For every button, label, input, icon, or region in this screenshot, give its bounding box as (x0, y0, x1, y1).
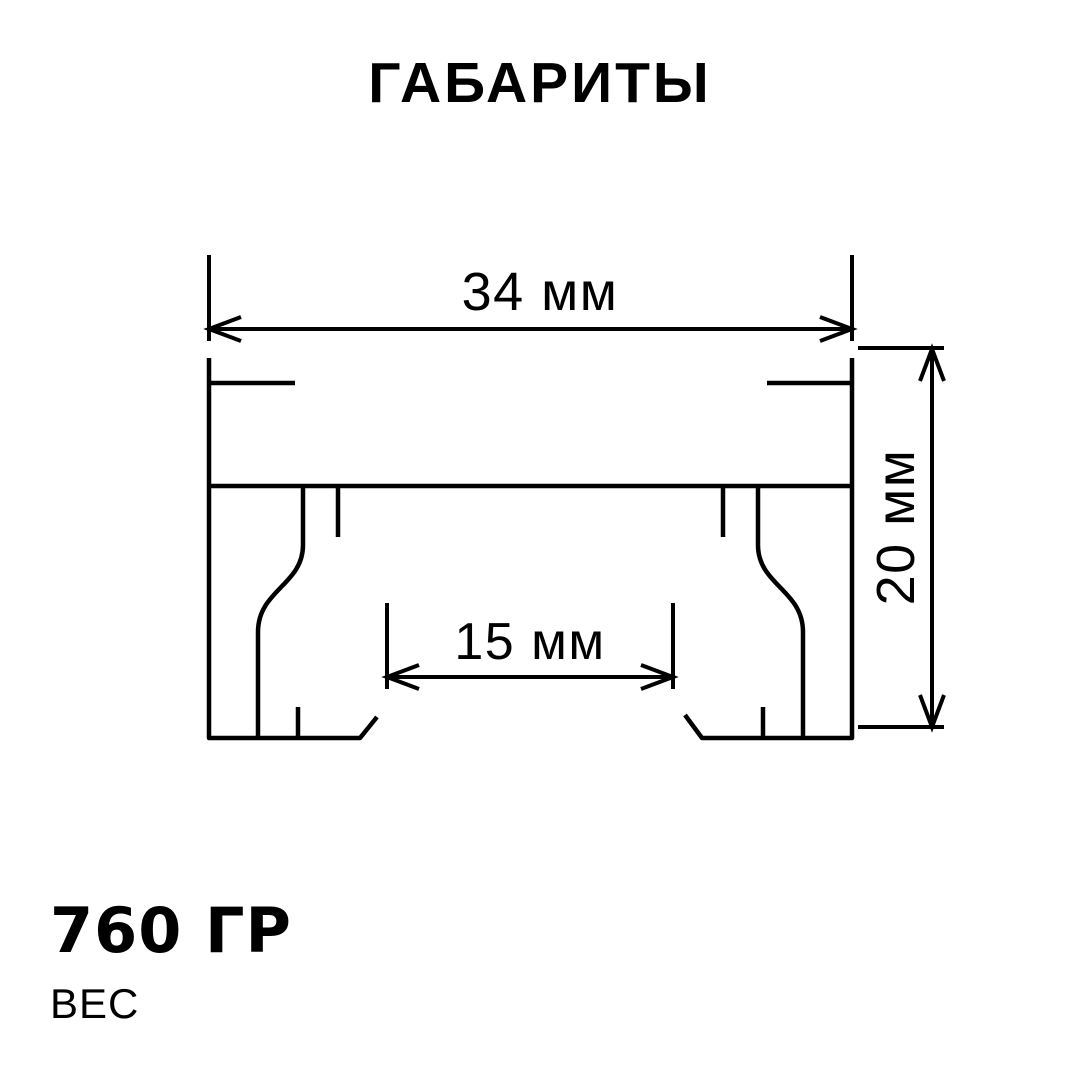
profile-outline (209, 358, 852, 738)
profile-left-leg (258, 486, 303, 738)
profile-right-wall (685, 358, 852, 738)
page: ГАБАРИТЫ (0, 0, 1080, 1080)
profile-right-leg (758, 486, 803, 738)
dimension-height-label: 20 мм (866, 449, 926, 606)
weight-block: 760 ГР ВЕС (50, 900, 292, 1025)
weight-caption: ВЕС (50, 983, 292, 1025)
dimension-inner-width-label: 15 мм (454, 613, 605, 671)
dimension-width-label: 34 мм (462, 262, 619, 322)
profile-left-wall (209, 358, 377, 738)
weight-value: 760 ГР (50, 900, 292, 962)
